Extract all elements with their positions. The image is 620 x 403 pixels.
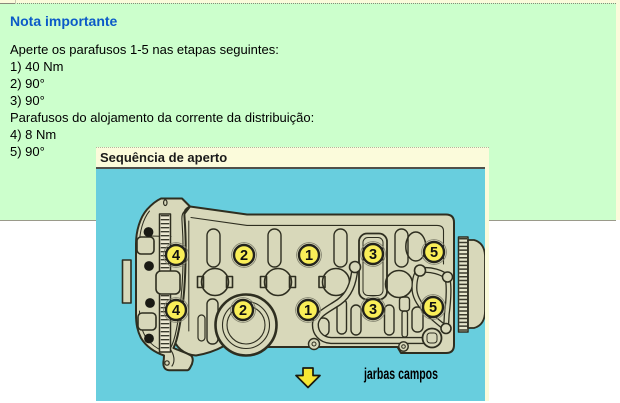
svg-text:1: 1 bbox=[305, 248, 313, 264]
svg-text:2: 2 bbox=[239, 303, 247, 319]
svg-text:3: 3 bbox=[369, 302, 377, 318]
svg-text:3: 3 bbox=[369, 247, 377, 263]
svg-text:jarbas campos: jarbas campos bbox=[363, 366, 438, 383]
svg-text:4: 4 bbox=[172, 303, 180, 319]
svg-text:2: 2 bbox=[240, 248, 248, 264]
svg-text:5: 5 bbox=[429, 300, 437, 316]
svg-text:4: 4 bbox=[172, 248, 180, 264]
svg-text:1: 1 bbox=[304, 303, 312, 319]
svg-text:5: 5 bbox=[430, 245, 438, 261]
